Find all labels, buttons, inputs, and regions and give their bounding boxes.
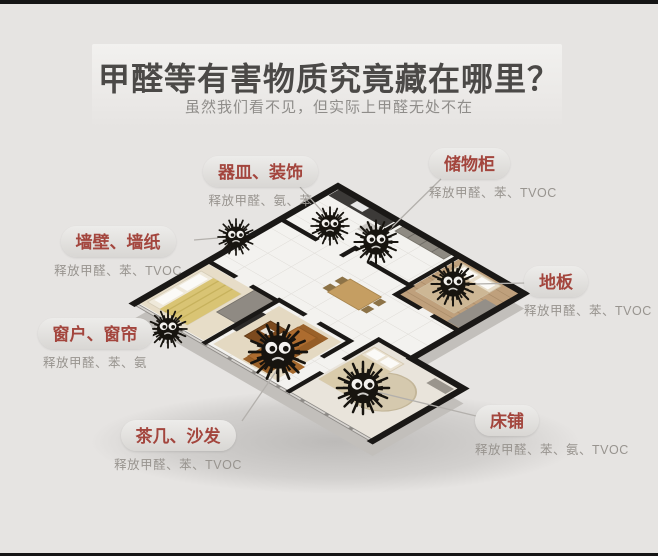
germ-monster-icon — [311, 207, 349, 245]
callout-label: 墙壁、墙纸 — [61, 226, 176, 257]
callout-bed: 床铺 释放甲醛、苯、氨、TVOC — [475, 405, 629, 458]
callout-label: 茶几、沙发 — [121, 420, 236, 451]
callout-substances: 释放甲醛、苯、氨 — [22, 352, 168, 371]
germ-monster-icon — [218, 219, 254, 255]
germ-monster-icon — [337, 362, 389, 414]
callout-label: 地板 — [524, 266, 588, 297]
callout-label: 储物柜 — [429, 148, 510, 179]
callout-substances: 释放甲醛、苯、TVOC — [524, 300, 652, 319]
callout-substances: 释放甲醛、苯、TVOC — [42, 260, 194, 279]
callout-substances: 释放甲醛、苯、TVOC — [102, 454, 254, 473]
callout-window-curtain: 窗户、窗帘 释放甲醛、苯、氨 — [22, 318, 168, 371]
callout-label: 窗户、窗帘 — [38, 318, 153, 349]
callout-label: 器皿、装饰 — [203, 156, 318, 187]
callout-substances: 释放甲醛、苯、氨、TVOC — [475, 439, 629, 458]
callout-floor: 地板 释放甲醛、苯、TVOC — [524, 266, 652, 319]
callout-dishes-decor: 器皿、装饰 释放甲醛、氨、苯 — [193, 156, 328, 209]
callout-substances: 释放甲醛、苯、TVOC — [429, 182, 557, 201]
germ-monster-icon — [249, 323, 307, 381]
connector-line — [194, 238, 218, 240]
callout-storage-cabinet: 储物柜 释放甲醛、苯、TVOC — [429, 148, 557, 201]
callout-label: 床铺 — [475, 405, 539, 436]
callout-substances: 释放甲醛、氨、苯 — [193, 190, 328, 209]
callout-tea-table-sofa: 茶几、沙发 释放甲醛、苯、TVOC — [102, 420, 254, 473]
germ-monster-icon — [354, 220, 397, 263]
germ-monster-icon — [431, 262, 474, 305]
callout-wall-wallpaper: 墙壁、墙纸 释放甲醛、苯、TVOC — [42, 226, 194, 279]
